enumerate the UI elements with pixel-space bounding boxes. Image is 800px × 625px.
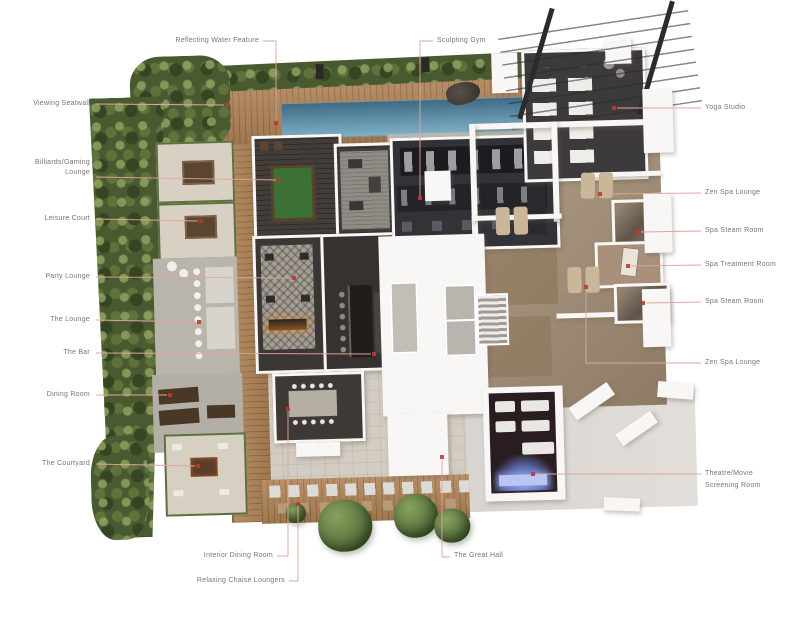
label-reflecting-water-feature: Reflecting Water Feature	[175, 36, 259, 46]
tree	[434, 508, 471, 543]
dining-table	[289, 390, 338, 417]
spa-lounger	[567, 267, 582, 293]
hedge-post	[421, 57, 429, 72]
spa-lounger	[599, 172, 613, 198]
lounge-chair	[369, 176, 381, 192]
bar-counter	[348, 285, 374, 358]
courtyard-lounger	[218, 443, 228, 449]
garden-corner-bottom-left	[90, 435, 151, 541]
label-the-courtyard: The Courtyard	[42, 459, 90, 469]
label-sculpting-gym: Sculpting Gym	[437, 36, 486, 46]
sofa	[348, 159, 362, 168]
theatre-sofa	[521, 400, 549, 412]
theatre-sofa	[495, 401, 515, 413]
theatre-screen	[499, 474, 547, 486]
elevator-cab	[390, 282, 420, 355]
elevator-cab	[445, 319, 478, 357]
lower-core-walls	[387, 413, 449, 477]
label-billiards-gaming-lounge: Billiards/Gaming Lounge	[28, 158, 90, 178]
outdoor-dining-table	[207, 405, 235, 419]
label-zen-spa-lounge-lower: Zen Spa Lounge	[705, 358, 760, 368]
label-the-lounge: The Lounge	[50, 315, 90, 325]
label-the-bar: The Bar	[63, 348, 90, 358]
label-spa-steam-room-lower: Spa Steam Room	[705, 297, 764, 307]
label-zen-spa-lounge-upper: Zen Spa Lounge	[705, 188, 760, 198]
grill-station	[296, 442, 340, 457]
courtyard-lounger	[172, 444, 182, 450]
spa-lounger	[513, 206, 528, 234]
roof-volume	[643, 192, 673, 253]
outdoor-dining-table	[159, 408, 200, 426]
spa-lounger	[495, 207, 510, 235]
label-party-lounge: Party Lounge	[45, 272, 90, 282]
theatre-sofa	[522, 442, 554, 455]
garden-game-table	[185, 215, 218, 239]
fireplace	[268, 319, 306, 331]
armchair	[260, 142, 269, 151]
lounge-seat	[301, 295, 310, 302]
label-yoga-studio: Yoga Studio	[705, 103, 745, 113]
roof-volume	[642, 88, 674, 153]
lounge-seat	[266, 295, 275, 302]
billiards-table	[270, 164, 316, 221]
hedge-post	[315, 64, 323, 79]
patio-rug	[206, 307, 235, 350]
roof-volume	[642, 288, 672, 347]
armchair	[274, 141, 283, 150]
slab-roof-piece	[604, 497, 641, 511]
gym-column	[424, 171, 451, 202]
spa-lounger	[581, 173, 595, 199]
label-relaxing-chaise-loungers: Relaxing Chaise Loungers	[197, 576, 285, 586]
lounge-seat	[300, 253, 309, 260]
lounge-seat	[265, 254, 274, 261]
massage-table	[619, 247, 639, 278]
theatre-sofa	[521, 420, 549, 432]
sofa	[349, 201, 363, 210]
elevator-cab	[444, 284, 477, 322]
label-leisure-court: Leisure Court	[45, 214, 90, 224]
label-spa-steam-room-upper: Spa Steam Room	[705, 226, 764, 236]
tree	[318, 499, 373, 552]
plan-graphic	[0, 0, 800, 625]
patio-rug	[205, 267, 234, 304]
floor-plan-rendering: Reflecting Water Feature Sculpting Gym V…	[0, 0, 800, 625]
label-spa-treatment-room: Spa Treatment Room	[705, 260, 776, 270]
courtyard-fire-table	[190, 457, 218, 477]
label-viewing-seatwall: Viewing Seatwall	[33, 99, 90, 109]
label-interior-dining-room: Interior Dining Room	[204, 551, 273, 561]
label-the-great-hall: The Great Hall	[454, 551, 503, 561]
outdoor-dining-table	[158, 387, 199, 405]
stairs	[476, 293, 509, 346]
roof-volume	[657, 381, 694, 400]
garden-game-table	[182, 160, 215, 185]
tree	[393, 493, 438, 538]
courtyard-lounger	[173, 490, 183, 496]
label-dining-room: Dining Room	[47, 390, 90, 400]
label-theatre-movie-screening-room: Theatre/Movie Screening Room	[705, 468, 761, 492]
theatre-sofa	[495, 421, 515, 433]
courtyard-lounger	[219, 489, 229, 495]
spa-lounger	[585, 266, 600, 292]
